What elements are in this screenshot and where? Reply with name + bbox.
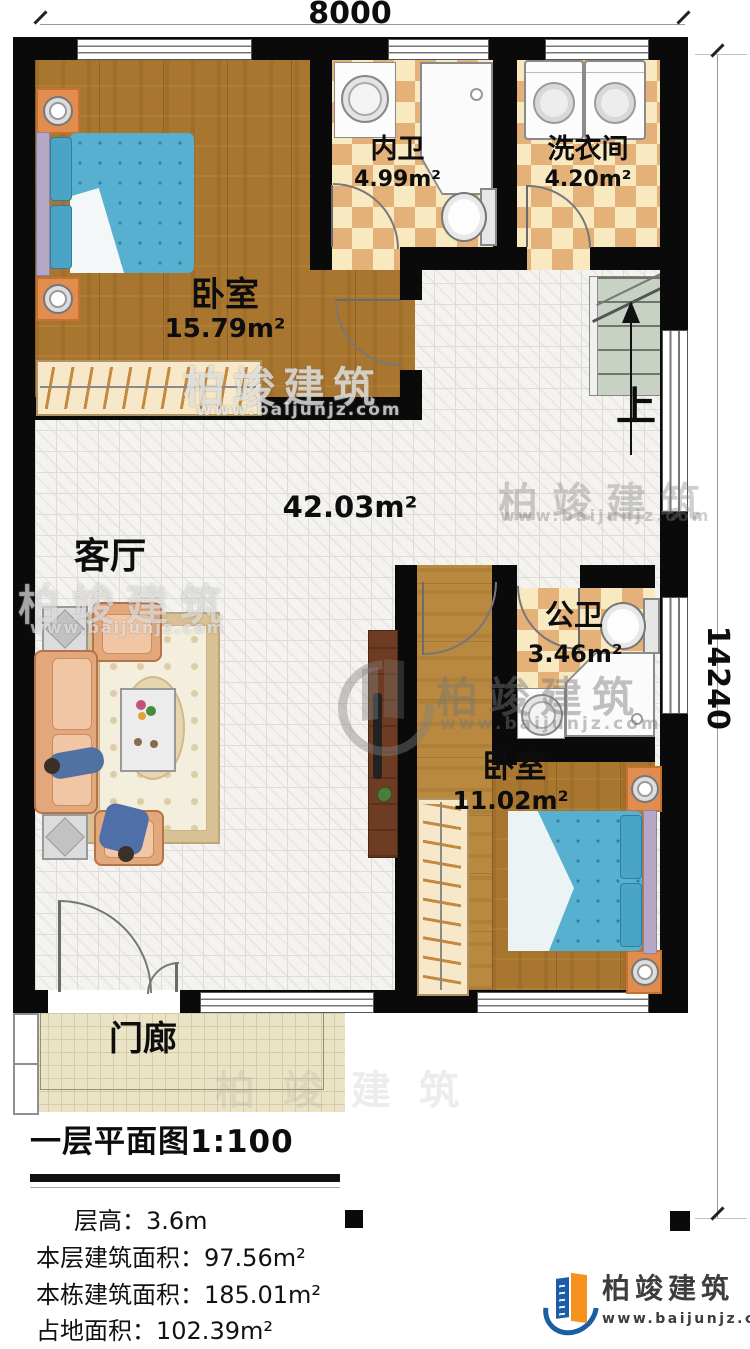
- person-head: [44, 758, 60, 774]
- washing-machine: [584, 60, 646, 140]
- dimension-extension: [695, 54, 747, 55]
- room-label-bedroom2: 卧室: [462, 750, 567, 784]
- watermark-url: www.baijunjz.com: [440, 714, 662, 734]
- wall-living-bedroom2: [395, 565, 417, 990]
- window: [545, 39, 649, 60]
- watermark-logo-icon: [384, 659, 404, 719]
- floor-plan: 卧室 15.79m² 内卫 4.99m² 洗衣间 4.20m² 42.03m² …: [0, 0, 750, 1349]
- window: [200, 992, 374, 1013]
- room-area-ensuite: 4.99m²: [340, 168, 455, 191]
- room-label-bedroom1: 卧室: [150, 278, 300, 314]
- stat-value: 102.39m²: [156, 1317, 273, 1345]
- nightstand: [36, 88, 80, 134]
- watermark-logo-icon: [362, 667, 378, 721]
- stairs-up-arrow-icon: [622, 292, 640, 323]
- watermark-url: www.baijunjz.com: [500, 506, 711, 525]
- stat-footprint-area: 占地面积：102.39m²: [36, 1311, 273, 1346]
- dimension-tick: [33, 10, 47, 24]
- wardrobe: [417, 798, 469, 996]
- sofa: [34, 650, 98, 814]
- stat-label: 层高：: [74, 1207, 146, 1235]
- bed-headboard: [643, 810, 657, 954]
- stat-label: 占地面积：: [36, 1317, 156, 1345]
- stat-value: 185.01m²: [204, 1281, 321, 1309]
- plant: [377, 787, 392, 802]
- room-label-living: 客厅: [60, 538, 160, 576]
- pillow: [620, 815, 642, 879]
- wall-bedroom1-ensuite: [310, 60, 332, 270]
- stat-value: 97.56m²: [204, 1244, 306, 1272]
- coffee-table: [120, 688, 176, 772]
- watermark-url: www.baijunjz.com: [196, 400, 402, 420]
- room-area-bedroom2: 11.02m²: [448, 788, 573, 814]
- stat-label: 本栋建筑面积：: [36, 1281, 204, 1309]
- nightstand: [626, 950, 662, 994]
- pillow: [50, 137, 72, 201]
- room-area-laundry: 4.20m²: [518, 168, 658, 191]
- brand-logo-icon: [556, 1277, 569, 1319]
- room-label-porch: 门廊: [88, 1022, 198, 1058]
- wall-publicbath-north: [580, 565, 655, 588]
- title-underline-thick: [30, 1174, 340, 1182]
- marker-square: [670, 1211, 690, 1231]
- brand-url: www.baijunjz.com: [602, 1312, 750, 1327]
- pillow: [620, 883, 642, 947]
- stat-value: 3.6m: [146, 1207, 208, 1235]
- stairs-direction-line: [630, 310, 632, 455]
- room-label-publicbath: 公卫: [524, 600, 624, 630]
- sink-basin: [341, 75, 389, 123]
- washing-machine: [524, 60, 584, 140]
- brand-logo-icon: [571, 1273, 587, 1323]
- stairs-stringer: [589, 276, 598, 396]
- marker-square: [345, 1210, 363, 1228]
- dimension-tick: [676, 10, 690, 24]
- room-area-bedroom1: 15.79m²: [150, 316, 300, 343]
- brand-name: 柏竣建筑: [602, 1274, 734, 1303]
- nightstand: [36, 277, 80, 321]
- nightstand: [626, 766, 662, 812]
- watermark-url: www.baijunjz.com: [30, 618, 225, 637]
- stat-label: 本层建筑面积：: [36, 1244, 204, 1272]
- brand-logo: 柏竣建筑 www.baijunjz.com: [540, 1272, 745, 1338]
- window: [477, 992, 649, 1013]
- stat-floor-height: 层高：3.6m: [74, 1201, 208, 1236]
- dimension-extension: [695, 1218, 747, 1219]
- plan-title: 一层平面图1:100: [30, 1126, 294, 1159]
- toilet-bowl: [441, 192, 487, 242]
- room-label-ensuite: 内卫: [340, 136, 455, 164]
- wall-exterior-left: [13, 37, 35, 1013]
- wall-laundry-south: [590, 247, 660, 270]
- watermark-brand: 柏竣建筑: [215, 1058, 487, 1116]
- title-underline-thin: [30, 1187, 340, 1188]
- bed-headboard: [36, 132, 50, 276]
- stat-building-area: 本栋建筑面积：185.01m²: [36, 1275, 321, 1310]
- window: [388, 39, 489, 60]
- pillow: [50, 205, 72, 269]
- dimension-height-label: 14240: [701, 598, 733, 758]
- stairs-up-label: 上: [610, 386, 662, 428]
- wall-corridor-east-upper: [400, 262, 422, 300]
- side-table: [42, 814, 88, 860]
- room-area-living: 42.03m²: [280, 492, 420, 522]
- window: [77, 39, 252, 60]
- room-label-laundry: 洗衣间: [518, 136, 658, 164]
- person-head: [118, 846, 134, 862]
- stat-floor-area: 本层建筑面积：97.56m²: [36, 1238, 306, 1273]
- porch-column: [13, 1013, 39, 1065]
- window: [662, 597, 688, 714]
- dimension-width-label: 8000: [280, 0, 420, 30]
- porch-column: [13, 1063, 39, 1115]
